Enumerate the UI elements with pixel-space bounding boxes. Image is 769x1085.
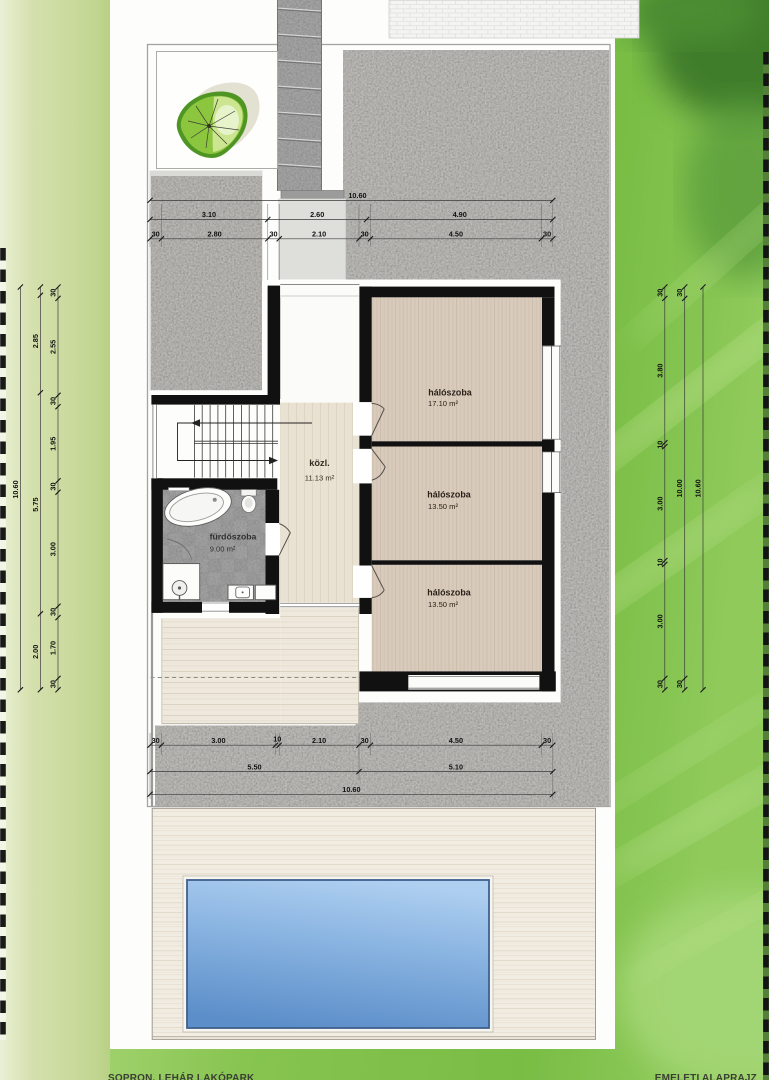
svg-text:10: 10 [655,558,664,566]
svg-text:2.10: 2.10 [312,230,326,239]
svg-text:hálószoba: hálószoba [427,588,470,598]
svg-text:4.90: 4.90 [453,210,467,219]
svg-text:30: 30 [543,736,551,745]
svg-text:17.10 m²: 17.10 m² [428,399,458,408]
svg-text:EMELETI ALAPRAJZ: EMELETI ALAPRAJZ [655,1073,757,1080]
svg-text:30: 30 [49,608,58,616]
svg-text:10: 10 [655,441,664,449]
svg-text:1.95: 1.95 [49,437,58,451]
svg-text:30: 30 [49,397,58,405]
svg-text:3.00: 3.00 [655,496,664,510]
svg-text:2.85: 2.85 [31,334,40,348]
svg-text:5.10: 5.10 [449,762,463,771]
svg-text:1.70: 1.70 [49,641,58,655]
svg-text:2.60: 2.60 [310,210,324,219]
svg-text:13.50 m²: 13.50 m² [428,600,458,609]
svg-text:2.55: 2.55 [49,340,58,354]
svg-text:SOPRON, LEHÁR LAKÓPARK: SOPRON, LEHÁR LAKÓPARK [108,1071,255,1080]
svg-text:30: 30 [152,736,160,745]
svg-text:30: 30 [269,230,277,239]
svg-text:2.00: 2.00 [31,645,40,659]
svg-text:9.00 m²: 9.00 m² [210,545,236,554]
svg-text:11.13 m²: 11.13 m² [305,474,335,483]
svg-text:4.50: 4.50 [449,736,463,745]
svg-text:3.10: 3.10 [202,210,216,219]
svg-text:30: 30 [49,680,58,688]
svg-text:4.50: 4.50 [449,230,463,239]
svg-text:30: 30 [361,736,369,745]
svg-text:5.75: 5.75 [31,497,40,511]
svg-text:30: 30 [675,289,684,297]
svg-text:hálószoba: hálószoba [427,490,470,500]
svg-text:30: 30 [675,680,684,688]
svg-text:3.00: 3.00 [655,614,664,628]
svg-text:10.60: 10.60 [694,479,703,497]
svg-text:10.00: 10.00 [675,479,684,497]
svg-text:2.10: 2.10 [312,736,326,745]
svg-text:2.80: 2.80 [207,230,221,239]
svg-text:13.50 m²: 13.50 m² [428,502,458,511]
svg-text:10.60: 10.60 [342,785,360,794]
svg-text:30: 30 [49,482,58,490]
svg-text:30: 30 [49,289,58,297]
svg-text:3.00: 3.00 [211,736,225,745]
svg-text:10.60: 10.60 [11,480,20,498]
svg-text:10: 10 [273,735,281,744]
svg-text:10.60: 10.60 [348,191,366,200]
svg-text:30: 30 [361,230,369,239]
svg-text:3.80: 3.80 [655,363,664,377]
svg-text:3.00: 3.00 [49,542,58,556]
svg-text:fürdőszoba: fürdőszoba [210,532,257,542]
svg-text:hálószoba: hálószoba [428,388,471,398]
svg-text:30: 30 [543,230,551,239]
svg-text:30: 30 [655,680,664,688]
svg-text:30: 30 [152,230,160,239]
svg-text:30: 30 [655,289,664,297]
svg-text:5.50: 5.50 [247,762,261,771]
svg-text:közl.: közl. [309,458,329,468]
